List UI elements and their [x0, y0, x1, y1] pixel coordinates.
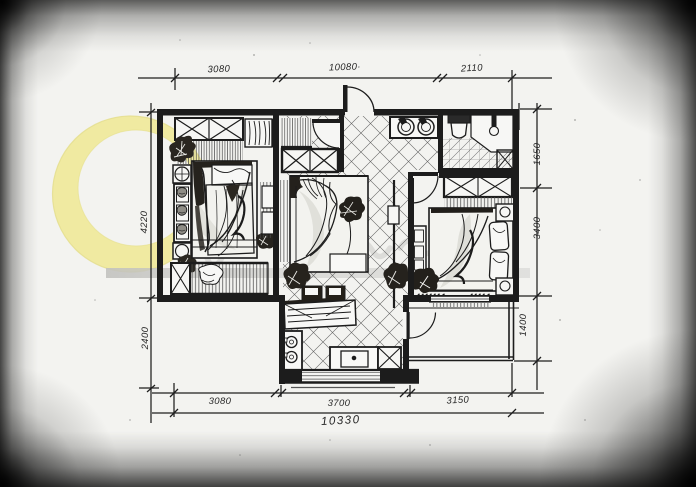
svg-text:10330: 10330: [321, 414, 361, 428]
svg-text:3080: 3080: [207, 64, 230, 76]
svg-text:1400: 1400: [518, 313, 529, 336]
svg-text:4220: 4220: [139, 210, 150, 233]
svg-text:2110: 2110: [460, 62, 484, 74]
svg-text:3150: 3150: [446, 394, 470, 406]
svg-text:10080·: 10080·: [329, 61, 361, 73]
svg-text:3080: 3080: [209, 396, 232, 407]
svg-text:1650: 1650: [532, 142, 543, 165]
svg-text:3400: 3400: [532, 216, 543, 239]
svg-text:2400: 2400: [140, 326, 151, 350]
svg-text:3700: 3700: [328, 398, 351, 409]
